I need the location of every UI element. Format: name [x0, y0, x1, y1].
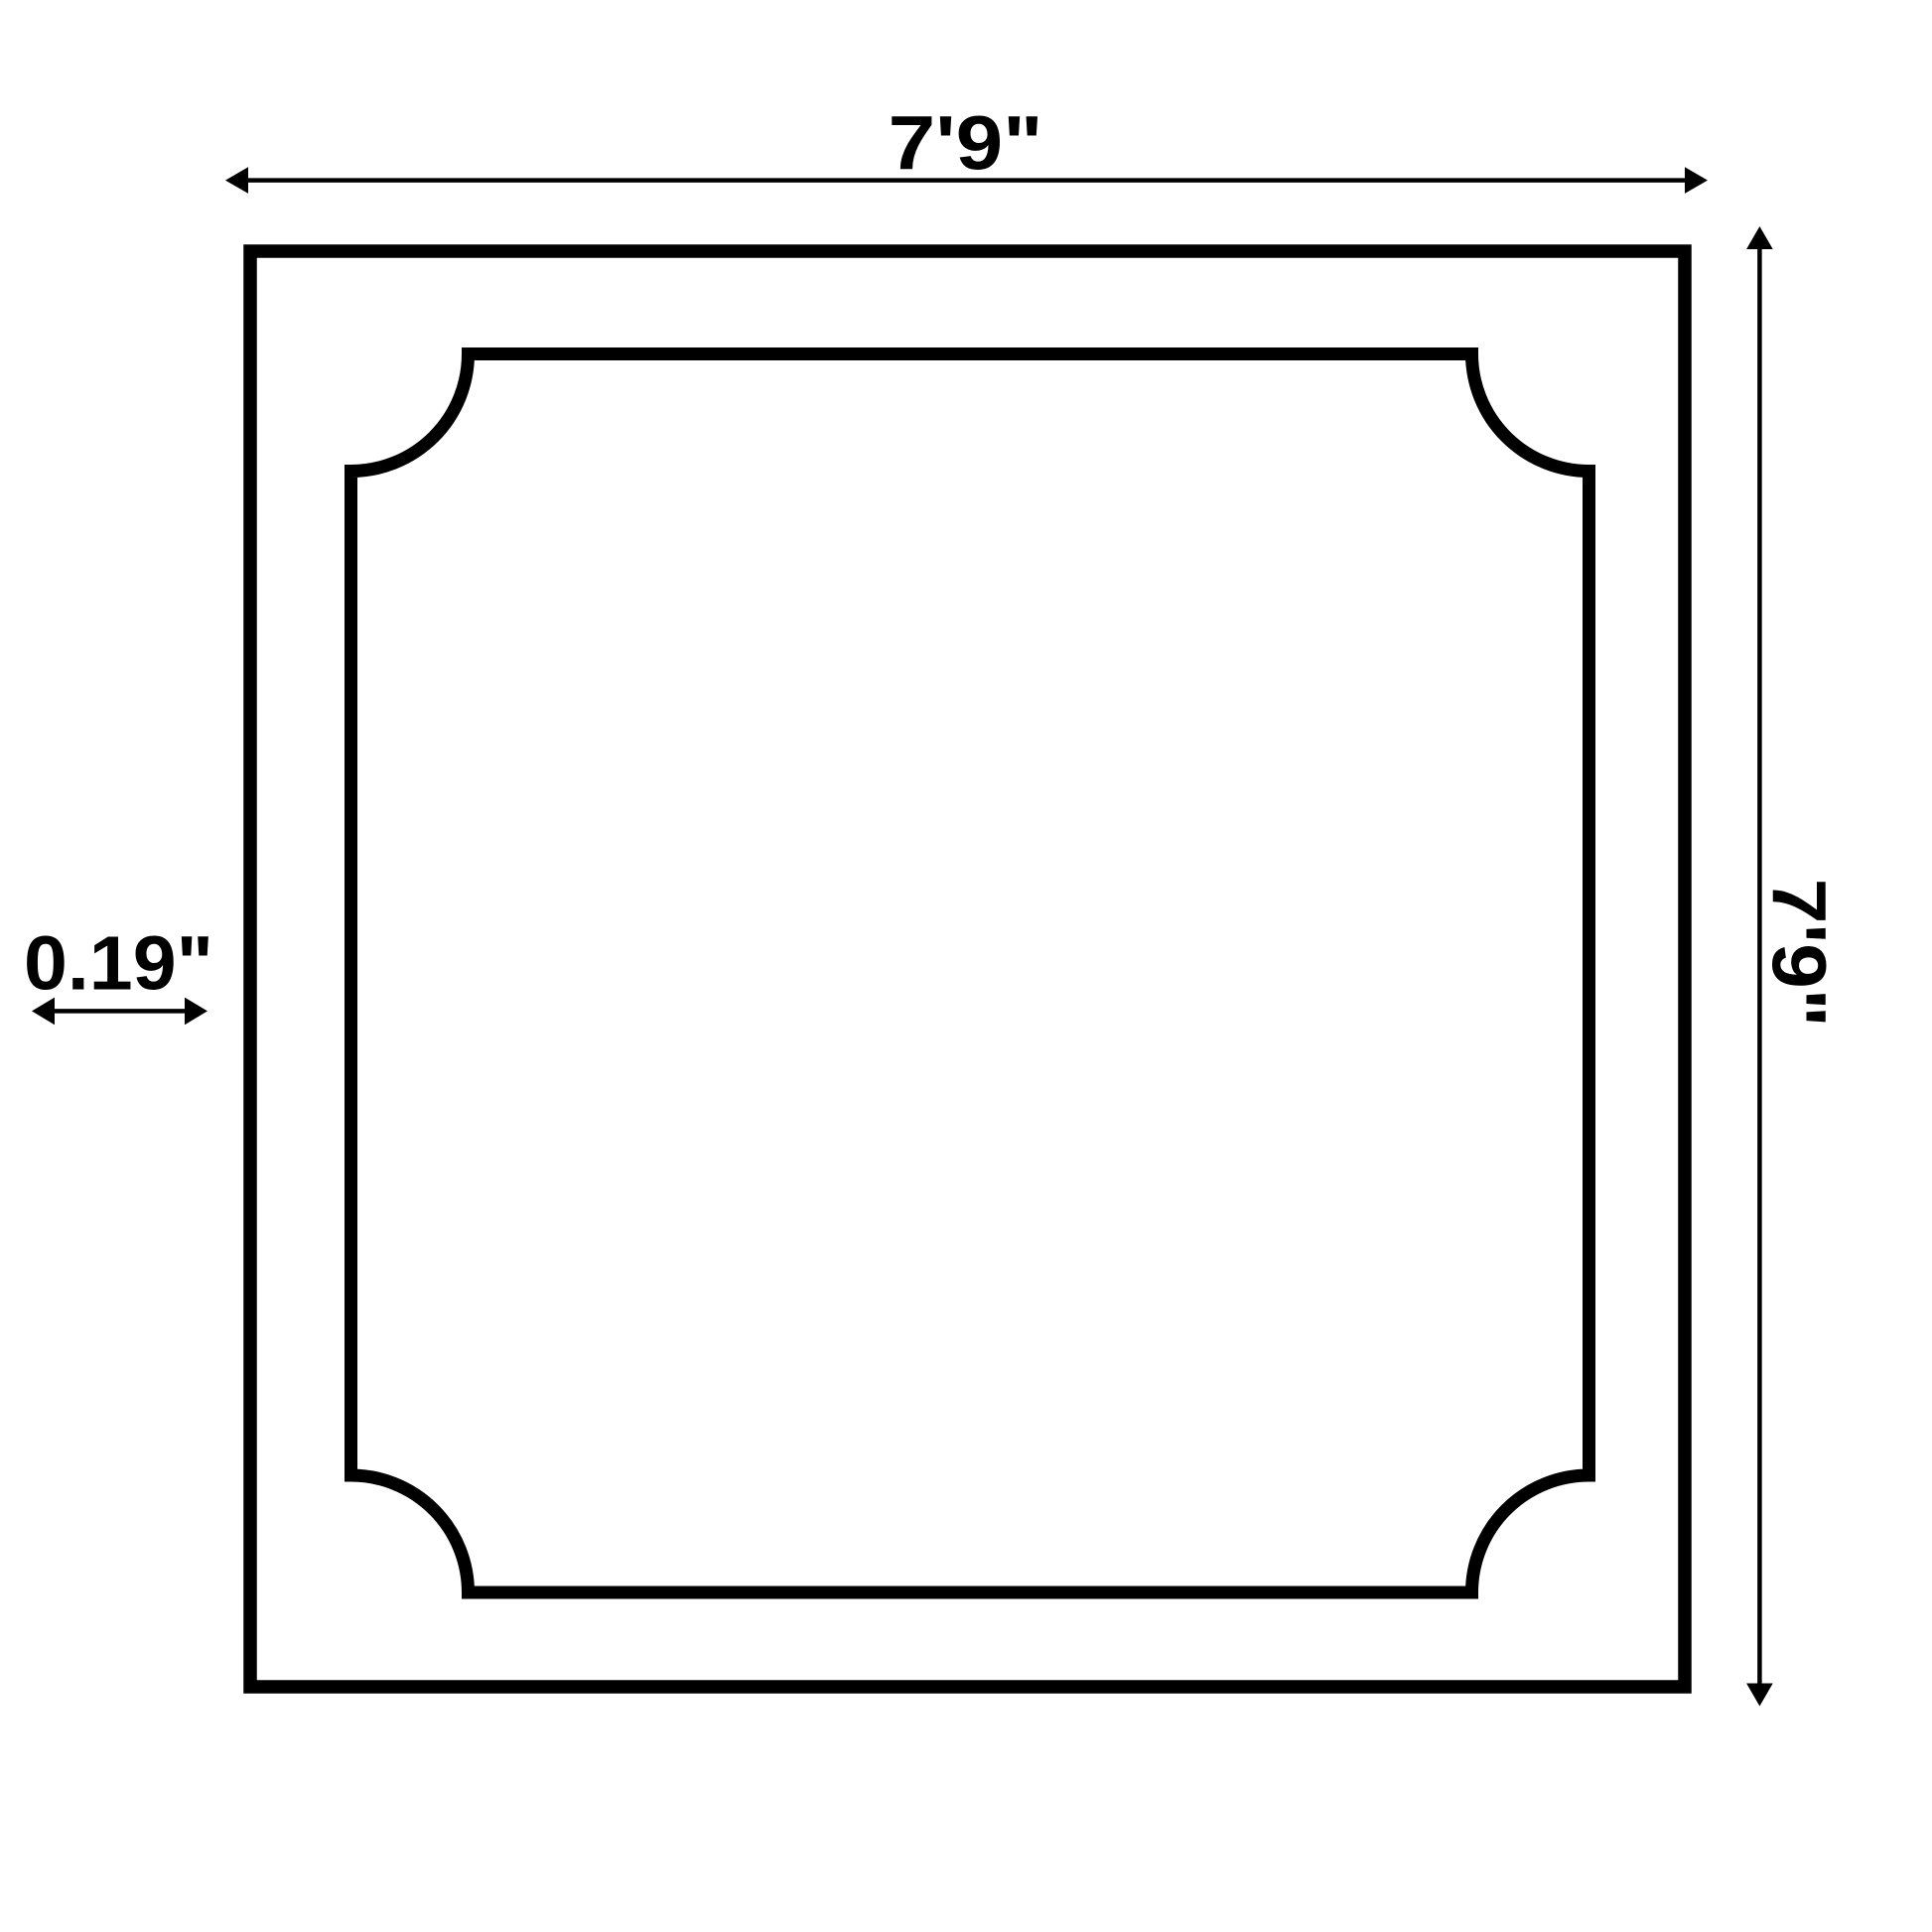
svg-text:0.19": 0.19" — [24, 921, 213, 1007]
svg-text:7'9": 7'9" — [1756, 879, 1842, 1028]
svg-text:7'9": 7'9" — [889, 101, 1043, 187]
